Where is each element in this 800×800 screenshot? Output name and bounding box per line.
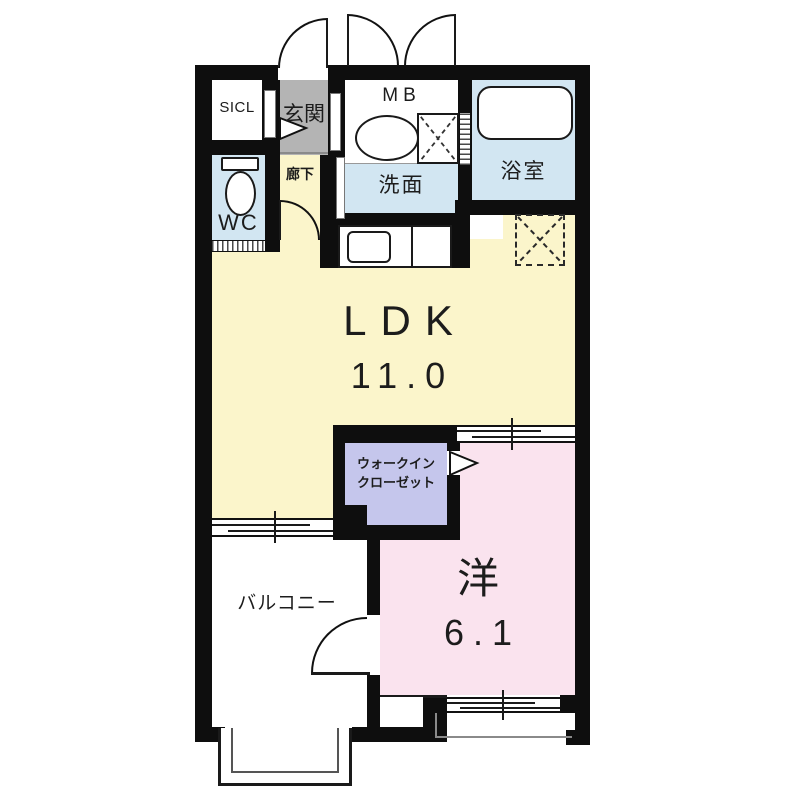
mb-door-right-leaf	[454, 14, 456, 66]
genkan-threshold-line	[280, 152, 328, 154]
western-name: 洋	[457, 545, 499, 606]
label-wc: WC	[212, 204, 265, 242]
window-line	[472, 436, 575, 438]
wall-right	[575, 65, 590, 745]
label-genkan: 玄関	[280, 96, 328, 130]
entrance-door-leaf	[326, 18, 328, 68]
window-center-tick	[274, 511, 276, 543]
window-line	[212, 524, 310, 526]
label-balcony: バルコニー	[218, 586, 356, 616]
wall-kitchen-right	[450, 215, 470, 268]
window-center-tick	[511, 418, 513, 450]
balcony-door-opening	[367, 615, 380, 675]
balcony-door-leaf	[311, 672, 370, 675]
toilet-tank-icon	[221, 157, 259, 171]
genkan-cabinet	[330, 93, 341, 151]
wall-wc-right	[265, 155, 280, 252]
label-senmen: 洗面	[345, 166, 458, 202]
wic-line1: ウォークイン	[357, 454, 435, 474]
sicl-door	[264, 90, 276, 138]
wall-balcony-step	[333, 505, 367, 537]
label-ldk: LDK 11.0	[278, 288, 518, 406]
washbasin-icon	[355, 115, 419, 161]
wall-kitchen-left	[320, 215, 338, 268]
label-sicl: SICL	[212, 92, 262, 122]
kitchen-wall-opening	[470, 215, 503, 239]
wall-top-right	[328, 65, 590, 80]
label-wic: ウォークイン クローゼット	[346, 446, 446, 500]
balcony-edge-inner	[231, 728, 339, 773]
ldk-size: 11.0	[351, 355, 454, 397]
mb-door-left-leaf	[347, 14, 349, 66]
fridge-space-icon	[515, 214, 565, 266]
window-line	[228, 530, 333, 532]
fridge-space-x-icon	[517, 216, 563, 264]
washer-pan-icon	[417, 113, 459, 164]
eave-line-left	[435, 713, 437, 738]
entrance-door-arc	[278, 18, 328, 68]
washer-pan-x-icon	[419, 115, 457, 162]
wic-door-arrow-icon	[449, 449, 481, 479]
kitchen-sink-icon	[347, 231, 391, 263]
western-size: 6.1	[444, 612, 521, 654]
window-ldk-western	[457, 425, 575, 443]
senmen-sliding-door	[336, 157, 345, 219]
floor-plan: SICL 玄関 MB 洗面 浴室 WC 廊下 LDK 11.0 ウォークイン ク…	[0, 0, 800, 800]
label-bathroom: 浴室	[472, 151, 575, 189]
wall-left	[195, 65, 212, 742]
window-line	[457, 430, 541, 432]
hallway-door-leaf	[279, 200, 281, 240]
wic-line2: クローゼット	[357, 473, 435, 493]
window-ldk-balcony	[212, 518, 333, 537]
ldk-name: LDK	[343, 297, 467, 345]
mb-door-left-arc	[347, 14, 399, 66]
label-mb: MB	[345, 81, 458, 110]
window-center-tick	[502, 690, 504, 720]
wall-bath-bottom	[455, 200, 590, 215]
bathroom-folding-door	[459, 113, 471, 165]
label-western: 洋 6.1	[408, 540, 548, 658]
kitchen-counter-divider	[411, 227, 413, 266]
alcove-below-western	[380, 697, 423, 727]
wall-bottom-right-a	[560, 695, 590, 713]
window-line	[447, 702, 535, 704]
bathtub-icon	[477, 86, 573, 140]
eave-line-bottom	[435, 736, 572, 738]
label-hallway: 廊下	[279, 161, 321, 187]
window-line	[460, 707, 560, 709]
wall-wic-top	[333, 425, 457, 443]
mb-door-right-arc	[404, 14, 456, 66]
